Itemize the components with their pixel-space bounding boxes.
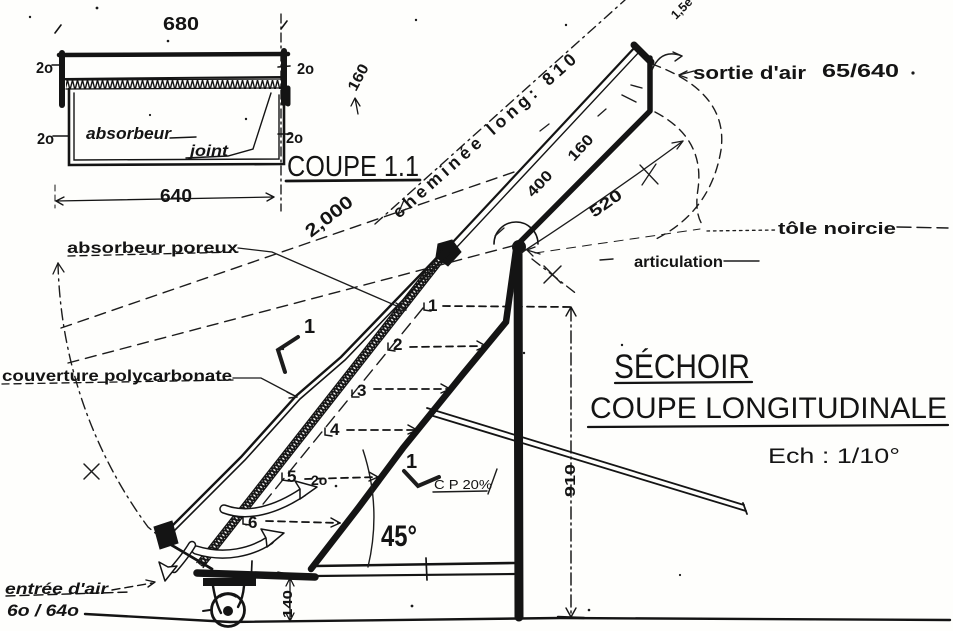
- svg-text:680: 680: [163, 14, 199, 34]
- svg-text:SÉCHOIR: SÉCHOIR: [614, 348, 750, 386]
- svg-text:2o: 2o: [286, 130, 303, 147]
- svg-text:400: 400: [523, 167, 556, 201]
- svg-text:140: 140: [280, 590, 295, 618]
- svg-text:160: 160: [564, 131, 597, 165]
- svg-text:4: 4: [330, 420, 340, 439]
- svg-text:640: 640: [160, 186, 192, 206]
- svg-text:1: 1: [304, 316, 315, 338]
- svg-text:absorbeur poreux: absorbeur poreux: [67, 240, 238, 257]
- svg-text:160: 160: [345, 61, 373, 94]
- svg-text:joint: joint: [188, 143, 229, 160]
- svg-text:2o: 2o: [311, 472, 327, 488]
- svg-text:6: 6: [248, 513, 257, 532]
- svg-text:C P 20%: C P 20%: [434, 477, 492, 492]
- svg-text:2o: 2o: [36, 60, 53, 77]
- svg-text:2,000: 2,000: [301, 192, 357, 242]
- svg-text:45°: 45°: [381, 520, 417, 553]
- svg-text:sortie d'air: sortie d'air: [693, 63, 806, 83]
- svg-text:COUPE LONGITUDINALE: COUPE LONGITUDINALE: [590, 392, 947, 425]
- svg-text:2o: 2o: [297, 61, 314, 78]
- svg-text:2: 2: [393, 335, 402, 354]
- svg-text:Ech : 1/10°: Ech : 1/10°: [768, 445, 900, 468]
- svg-text:1: 1: [428, 296, 437, 315]
- svg-text:520: 520: [587, 187, 626, 222]
- svg-text:1,5e: 1,5e: [668, 0, 695, 22]
- svg-text:910: 910: [562, 464, 579, 497]
- svg-text:2o: 2o: [37, 131, 54, 148]
- svg-text:1: 1: [406, 451, 417, 473]
- svg-text:5: 5: [287, 467, 296, 486]
- svg-text:3: 3: [357, 381, 366, 400]
- svg-text:couverture polycarbonate: couverture polycarbonate: [2, 368, 232, 385]
- svg-text:65/640: 65/640: [822, 61, 899, 81]
- svg-text:COUPE 1.1: COUPE 1.1: [287, 151, 419, 183]
- svg-text:absorbeur: absorbeur: [86, 124, 172, 143]
- svg-text:6o / 64o: 6o / 64o: [7, 602, 79, 620]
- svg-text:articulation: articulation: [634, 254, 723, 271]
- svg-text:entrée d'air: entrée d'air: [5, 581, 109, 598]
- svg-text:tôle noircie: tôle noircie: [778, 220, 896, 238]
